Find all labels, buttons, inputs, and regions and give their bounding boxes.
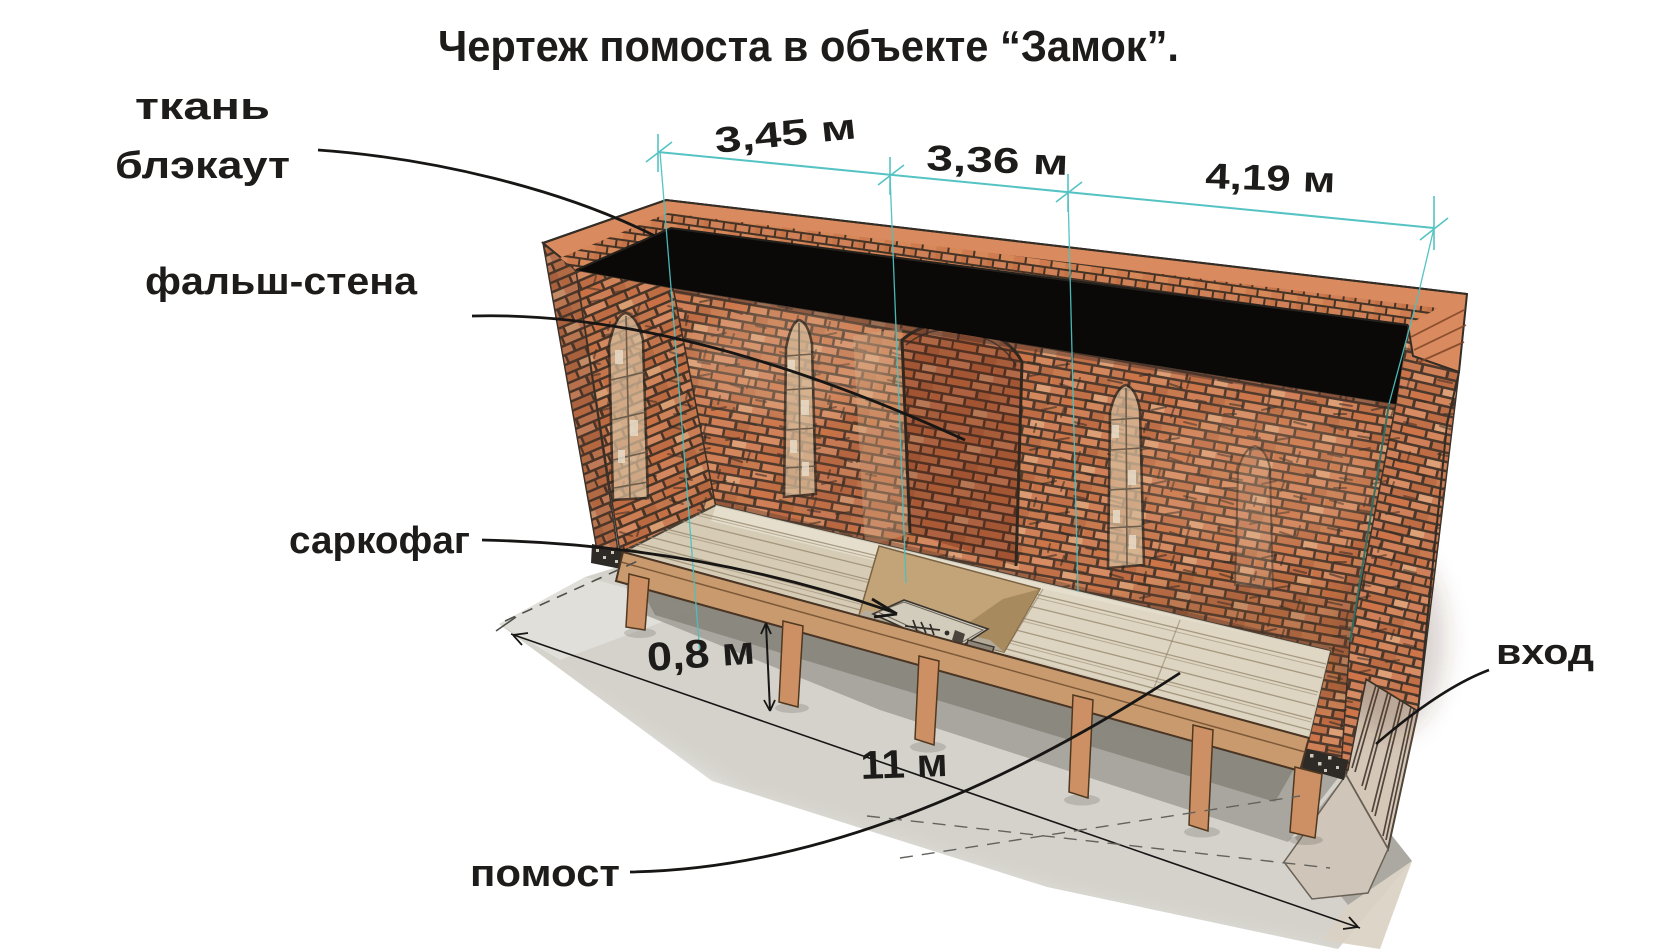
svg-text:блэкаут: блэкаут bbox=[115, 145, 290, 187]
svg-text:4,19 м: 4,19 м bbox=[1205, 155, 1336, 201]
svg-text:Чертеж помоста в объекте “Замо: Чертеж помоста в объекте “Замок”. bbox=[438, 22, 1179, 71]
svg-text:саркофаг: саркофаг bbox=[289, 520, 470, 562]
svg-text:3,36 м: 3,36 м bbox=[926, 137, 1069, 183]
svg-text:вход: вход bbox=[1496, 631, 1594, 672]
svg-text:помост: помост bbox=[470, 853, 620, 895]
svg-text:11 м: 11 м bbox=[860, 741, 948, 788]
svg-text:фальш-стена: фальш-стена bbox=[145, 261, 418, 303]
svg-text:0,8 м: 0,8 м bbox=[646, 629, 757, 680]
svg-text:ткань: ткань bbox=[135, 86, 270, 128]
